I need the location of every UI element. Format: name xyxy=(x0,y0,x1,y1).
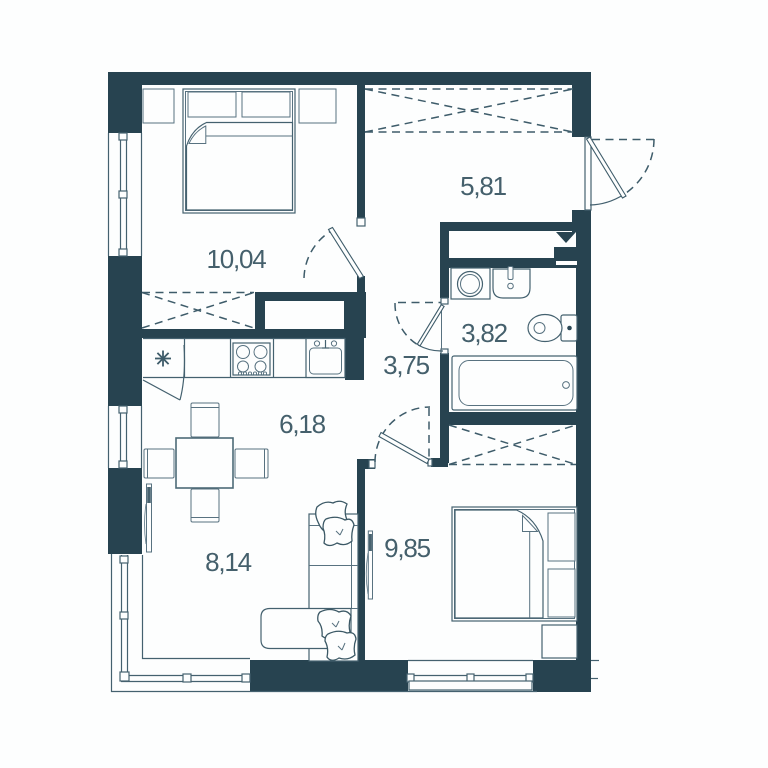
svg-text:5,81: 5,81 xyxy=(460,171,507,201)
svg-text:3,75: 3,75 xyxy=(383,350,430,380)
svg-text:9,85: 9,85 xyxy=(384,533,431,563)
svg-text:3,82: 3,82 xyxy=(461,318,508,348)
svg-text:10,04: 10,04 xyxy=(206,244,266,274)
svg-text:6,18: 6,18 xyxy=(279,409,326,439)
svg-text:8,14: 8,14 xyxy=(205,547,252,577)
